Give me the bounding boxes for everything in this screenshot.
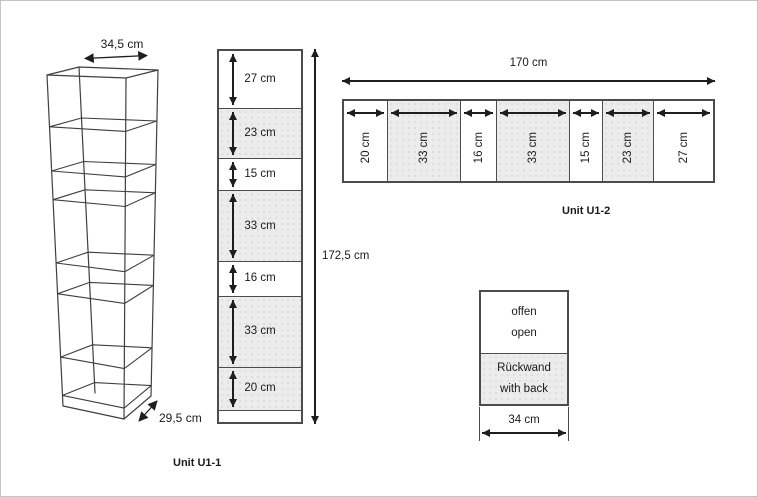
u1-1-section-20: 20 cm bbox=[219, 368, 301, 411]
vertical-dimension-arrow bbox=[232, 112, 234, 155]
vertical-dimension-arrow bbox=[232, 300, 234, 364]
technical-drawing-page: 34,5 cm 29,5 cm 27 cm 23 cm 15 cm 33 cm … bbox=[0, 0, 758, 497]
vertical-dimension-arrow bbox=[232, 265, 234, 293]
legend-back-label-de: Rückwand bbox=[497, 358, 551, 379]
legend-back-cell: Rückwand with back bbox=[481, 354, 567, 404]
section-width-label: 33 cm bbox=[418, 132, 430, 163]
unit-u1-1-elevation: 27 cm 23 cm 15 cm 33 cm 16 cm 33 cm 20 c… bbox=[217, 49, 303, 424]
legend-open-cell: offen open bbox=[481, 292, 567, 354]
u1-2-section-27: 27 cm bbox=[654, 101, 713, 181]
u1-1-section-23: 23 cm bbox=[219, 109, 301, 159]
vertical-dimension-arrow bbox=[232, 162, 234, 188]
iso-dimension-arrows bbox=[85, 56, 157, 422]
section-width-label: 27 cm bbox=[678, 132, 690, 163]
section-height-label: 33 cm bbox=[244, 325, 275, 338]
section-height-label: 15 cm bbox=[244, 168, 275, 181]
legend-open-label-de: offen bbox=[511, 302, 536, 323]
legend-width-label: 34 cm bbox=[479, 414, 569, 427]
u1-1-caption: Unit U1-1 bbox=[173, 457, 221, 469]
u1-1-total-height-arrow bbox=[314, 49, 316, 424]
u1-1-section-15: 15 cm bbox=[219, 159, 301, 192]
vertical-dimension-arrow bbox=[232, 194, 234, 258]
section-width-label: 15 cm bbox=[580, 132, 592, 163]
u1-1-section-16: 16 cm bbox=[219, 262, 301, 297]
section-width-label: 20 cm bbox=[360, 132, 372, 163]
unit-u1-2-elevation: 20 cm 33 cm 16 cm 33 cm 15 cm 23 cm 27 c… bbox=[342, 99, 715, 183]
u1-1-total-height-label: 172,5 cm bbox=[322, 250, 369, 263]
section-width-label: 23 cm bbox=[622, 132, 634, 163]
u1-2-total-width-arrow bbox=[342, 80, 715, 82]
u1-2-total-width-label: 170 cm bbox=[342, 57, 715, 70]
isometric-unit-drawing bbox=[1, 1, 758, 497]
section-height-label: 27 cm bbox=[244, 73, 275, 86]
u1-2-section-15: 15 cm bbox=[570, 101, 604, 181]
legend-width-arrow bbox=[482, 432, 566, 434]
vertical-dimension-arrow bbox=[232, 371, 234, 407]
cabinet-outline bbox=[47, 67, 158, 419]
u1-2-section-23: 23 cm bbox=[603, 101, 654, 181]
u1-2-section-33a: 33 cm bbox=[388, 101, 461, 181]
u1-2-section-33b: 33 cm bbox=[497, 101, 570, 181]
u1-1-section-33b: 33 cm bbox=[219, 297, 301, 368]
vertical-dimension-arrow bbox=[232, 54, 234, 105]
u1-2-section-16: 16 cm bbox=[461, 101, 497, 181]
iso-width-label: 34,5 cm bbox=[94, 37, 150, 51]
u1-1-section-27: 27 cm bbox=[219, 51, 301, 109]
section-height-label: 20 cm bbox=[244, 382, 275, 395]
u1-2-caption: Unit U1-2 bbox=[562, 205, 610, 217]
section-height-label: 33 cm bbox=[244, 220, 275, 233]
legend-box: offen open Rückwand with back bbox=[479, 290, 569, 406]
cabinet-shelves bbox=[50, 118, 157, 408]
section-width-label: 16 cm bbox=[473, 132, 485, 163]
iso-depth-label: 29,5 cm bbox=[159, 411, 202, 425]
section-width-label: 33 cm bbox=[527, 132, 539, 163]
u1-1-base-strip bbox=[219, 411, 301, 422]
legend-back-label-en: with back bbox=[500, 379, 548, 400]
section-height-label: 23 cm bbox=[244, 127, 275, 140]
u1-1-section-33a: 33 cm bbox=[219, 191, 301, 262]
legend-open-label-en: open bbox=[511, 323, 537, 344]
section-height-label: 16 cm bbox=[244, 272, 275, 285]
u1-2-section-20: 20 cm bbox=[344, 101, 388, 181]
